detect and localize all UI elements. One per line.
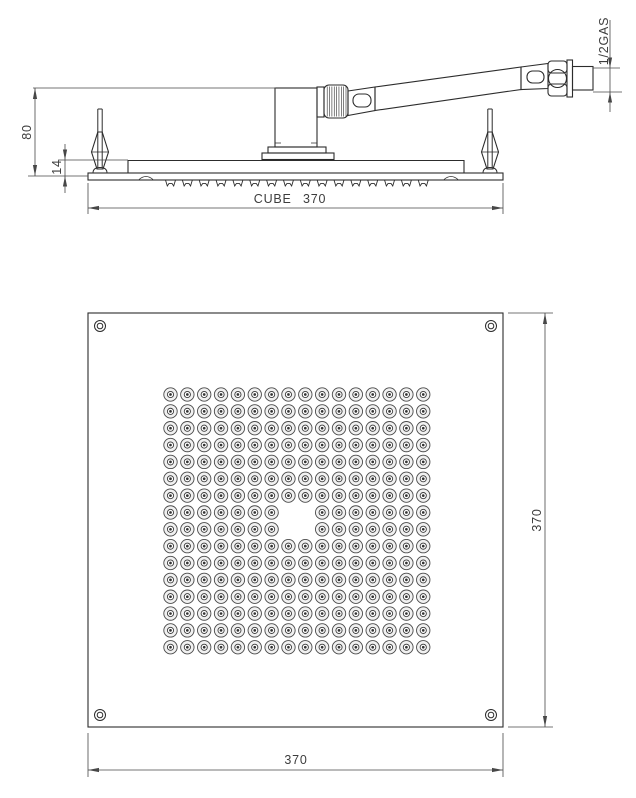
nozzle-center-dot <box>371 646 374 649</box>
nozzle-center-dot <box>355 393 358 396</box>
side-nozzle <box>166 180 176 186</box>
plate-raised-section <box>128 161 464 174</box>
nozzle-center-dot <box>405 562 408 565</box>
nozzle-center-dot <box>388 511 391 514</box>
nozzle-center-dot <box>186 579 189 582</box>
dimension-plan-bottom-370: 370 <box>88 733 503 777</box>
nozzle-center-dot <box>405 427 408 430</box>
nozzle-center-dot <box>253 410 256 413</box>
nozzle-center-dot <box>422 511 425 514</box>
nozzle-center-dot <box>253 494 256 497</box>
side-view <box>88 60 593 186</box>
nozzle-center-dot <box>186 612 189 615</box>
knurl-texture <box>327 87 346 117</box>
nozzle-center-dot <box>203 579 206 582</box>
nozzle-center-dot <box>270 511 273 514</box>
arrowhead <box>492 768 503 772</box>
nozzle-center-dot <box>253 461 256 464</box>
arrowhead <box>33 88 37 99</box>
nozzle-center-dot <box>287 444 290 447</box>
nozzle-center-dot <box>220 444 223 447</box>
nozzle-center-dot <box>186 427 189 430</box>
nozzle-center-dot <box>371 494 374 497</box>
nozzle-center-dot <box>405 579 408 582</box>
pin-foot-dome <box>483 168 497 174</box>
side-nozzle <box>317 180 327 186</box>
nozzle-center-dot <box>287 612 290 615</box>
nozzle-center-dot <box>270 528 273 531</box>
nozzle-center-dot <box>321 545 324 548</box>
nozzle-center-dot <box>203 646 206 649</box>
nozzle-center-dot <box>287 545 290 548</box>
nozzle-center-dot <box>203 494 206 497</box>
nozzle-center-dot <box>422 494 425 497</box>
nozzle-center-dot <box>388 629 391 632</box>
nozzle-center-dot <box>355 562 358 565</box>
nozzle-center-dot <box>253 511 256 514</box>
nozzle-center-dot <box>304 444 307 447</box>
nozzle-center-dot <box>321 646 324 649</box>
hex-nut-middle-facet <box>549 70 567 88</box>
nozzle-center-dot <box>186 461 189 464</box>
dimension-thickness-14: 14 <box>50 144 128 193</box>
hex-nut-bottom-facet <box>548 84 567 96</box>
corner-screw-inner <box>488 712 494 718</box>
nozzle-center-dot <box>321 562 324 565</box>
nozzle-center-dot <box>304 595 307 598</box>
nozzle-center-dot <box>422 612 425 615</box>
nozzle-center-dot <box>169 511 172 514</box>
dimension-thread-half-gas: 1/2GAS <box>593 17 622 112</box>
nozzle-center-dot <box>220 410 223 413</box>
nozzle-center-dot <box>253 477 256 480</box>
corner-screws <box>95 321 497 721</box>
nozzle-center-dot <box>371 562 374 565</box>
plate-face <box>88 313 503 727</box>
nozzle-center-dot <box>321 393 324 396</box>
nozzle-center-dot <box>203 461 206 464</box>
knurled-nut <box>324 85 348 118</box>
nozzle-center-dot <box>287 646 290 649</box>
nozzle-center-dot <box>287 494 290 497</box>
nozzle-center-dot <box>253 595 256 598</box>
mounting-pins <box>92 109 499 173</box>
nozzle-center-dot <box>220 562 223 565</box>
nozzle-center-dot <box>220 494 223 497</box>
side-nozzle <box>216 180 226 186</box>
side-nozzle <box>401 180 411 186</box>
nozzle-center-dot <box>304 646 307 649</box>
pin-foot-dome <box>93 168 107 174</box>
nozzle-center-dot <box>371 410 374 413</box>
pedestal-upper-step <box>268 147 326 153</box>
side-nozzle <box>199 180 209 186</box>
nozzle-center-dot <box>237 612 240 615</box>
nozzle-center-dot <box>253 579 256 582</box>
nozzle-center-dot <box>422 410 425 413</box>
nozzle-center-dot <box>220 579 223 582</box>
side-nozzle <box>182 180 192 186</box>
nozzle-center-dot <box>203 410 206 413</box>
nozzle-center-dot <box>321 511 324 514</box>
mounting-pin <box>482 109 499 173</box>
nozzle-center-dot <box>220 511 223 514</box>
nozzle-center-dot <box>237 528 240 531</box>
nozzle-center-dot <box>422 595 425 598</box>
nozzle-center-dot <box>237 629 240 632</box>
nozzle-center-dot <box>186 595 189 598</box>
nozzle-center-dot <box>169 410 172 413</box>
nozzle-center-dot <box>304 612 307 615</box>
nozzle-center-dot <box>270 562 273 565</box>
nozzle-center-dot <box>237 494 240 497</box>
nozzle-center-dot <box>405 410 408 413</box>
nozzle-center-dot <box>321 629 324 632</box>
nozzle-center-dot <box>321 427 324 430</box>
nozzle-center-dot <box>422 444 425 447</box>
nozzle-center-dot <box>270 393 273 396</box>
nozzle-center-dot <box>287 410 290 413</box>
nozzle-center-dot <box>388 461 391 464</box>
nozzle-center-dot <box>270 494 273 497</box>
pin-bicone <box>482 132 499 169</box>
arrowhead <box>543 313 547 324</box>
nozzle-center-dot <box>355 410 358 413</box>
corner-screw-inner <box>97 712 103 718</box>
nozzle-center-dot <box>287 427 290 430</box>
nozzle-center-dot <box>169 393 172 396</box>
nozzle-center-dot <box>388 545 391 548</box>
nozzle-center-dot <box>304 461 307 464</box>
arm-left-slot <box>353 94 371 107</box>
corner-screw-outer <box>95 321 106 332</box>
nozzle-center-dot <box>371 612 374 615</box>
nozzle-center-dot <box>338 528 341 531</box>
nozzle-center-dot <box>355 629 358 632</box>
arrowhead <box>543 716 547 727</box>
nozzle-center-dot <box>321 461 324 464</box>
nozzle-center-dot <box>388 595 391 598</box>
nozzle-center-dot <box>405 646 408 649</box>
nozzle-center-dot <box>321 494 324 497</box>
nozzle-center-dot <box>186 477 189 480</box>
nozzle-center-dot <box>355 612 358 615</box>
nozzle-center-dot <box>321 477 324 480</box>
nozzle-center-dot <box>304 545 307 548</box>
side-nozzle <box>418 180 428 186</box>
arm-tube <box>375 67 521 111</box>
side-nozzle <box>334 180 344 186</box>
arrowhead <box>33 165 37 176</box>
technical-drawing-page: 80 14 CUBE 370 1/2GAS 370 <box>0 0 636 798</box>
nozzle-center-dot <box>321 595 324 598</box>
nozzle-center-dot <box>405 477 408 480</box>
washer-flange <box>567 60 573 97</box>
nozzle-center-dot <box>169 545 172 548</box>
nozzle-center-dot <box>186 410 189 413</box>
nozzle-center-dot <box>388 579 391 582</box>
nozzle-center-dot <box>237 444 240 447</box>
nozzle-center-dot <box>203 545 206 548</box>
nozzle-center-dot <box>237 595 240 598</box>
nozzle-center-dot <box>304 410 307 413</box>
nozzle-center-dot <box>405 444 408 447</box>
nozzle-center-dot <box>388 646 391 649</box>
nozzle-center-dot <box>388 410 391 413</box>
nozzle-center-dot <box>220 461 223 464</box>
nozzle-center-dot <box>405 629 408 632</box>
nozzle-center-dot <box>371 477 374 480</box>
nozzle-center-dot <box>237 477 240 480</box>
nozzle-center-dot <box>287 579 290 582</box>
nozzle-center-dot <box>338 595 341 598</box>
nozzle-center-dot <box>371 427 374 430</box>
nozzle-center-dot <box>220 629 223 632</box>
nozzle-center-dot <box>270 461 273 464</box>
nozzle-center-dot <box>422 528 425 531</box>
nozzle-center-dot <box>169 562 172 565</box>
nozzle-center-dot <box>371 511 374 514</box>
nozzle-center-dot <box>355 427 358 430</box>
nozzle-center-dot <box>355 579 358 582</box>
nozzle-grid <box>164 388 430 654</box>
nozzle-center-dot <box>338 612 341 615</box>
nozzle-center-dot <box>169 612 172 615</box>
nozzle-center-dot <box>287 393 290 396</box>
nozzle-center-dot <box>253 545 256 548</box>
nozzle-center-dot <box>220 427 223 430</box>
nozzle-center-dot <box>270 410 273 413</box>
nozzle-center-dot <box>169 579 172 582</box>
nozzle-center-dot <box>388 612 391 615</box>
nozzle-center-dot <box>388 477 391 480</box>
nut-collar <box>317 87 324 117</box>
nozzle-center-dot <box>287 477 290 480</box>
nozzle-center-dot <box>186 646 189 649</box>
nozzle-center-dot <box>422 461 425 464</box>
mounting-pin <box>92 109 109 173</box>
nozzle-center-dot <box>270 579 273 582</box>
nozzle-center-dot <box>169 595 172 598</box>
nozzle-center-dot <box>422 545 425 548</box>
nozzle-center-dot <box>169 477 172 480</box>
nozzle-center-dot <box>253 562 256 565</box>
nozzle-center-dot <box>203 562 206 565</box>
nozzle-center-dot <box>203 595 206 598</box>
arrowhead <box>492 206 503 210</box>
dim-label-14: 14 <box>50 159 64 175</box>
nozzle-center-dot <box>220 477 223 480</box>
nozzle-center-dot <box>203 444 206 447</box>
nozzle-center-dot <box>270 427 273 430</box>
nozzle-center-dot <box>405 494 408 497</box>
plate-right-boss <box>444 177 458 180</box>
nozzle-center-dot <box>253 528 256 531</box>
nozzle-center-dot <box>169 444 172 447</box>
side-nozzle <box>385 180 395 186</box>
hex-nut-top-facet <box>548 61 567 73</box>
nozzle-center-dot <box>355 528 358 531</box>
nozzle-center-dot <box>203 629 206 632</box>
arrowhead <box>63 150 67 161</box>
nozzle-center-dot <box>169 629 172 632</box>
nozzle-center-dot <box>203 427 206 430</box>
nozzle-center-dot <box>338 427 341 430</box>
nozzle-center-dot <box>270 612 273 615</box>
side-nozzle-row <box>166 180 429 186</box>
side-nozzle <box>368 180 378 186</box>
nozzle-center-dot <box>169 427 172 430</box>
nozzle-center-dot <box>405 528 408 531</box>
nozzle-center-dot <box>388 427 391 430</box>
nozzle-center-dot <box>338 562 341 565</box>
nozzle-center-dot <box>338 461 341 464</box>
dim-label-right-370: 370 <box>530 508 544 531</box>
nozzle-center-dot <box>186 562 189 565</box>
nozzle-center-dot <box>253 444 256 447</box>
nozzle-center-dot <box>405 545 408 548</box>
nozzle-center-dot <box>355 461 358 464</box>
nozzle-center-dot <box>371 595 374 598</box>
nozzle-center-dot <box>304 579 307 582</box>
nozzle-center-dot <box>355 494 358 497</box>
nozzle-center-dot <box>237 562 240 565</box>
inlet-column <box>275 88 317 147</box>
side-nozzle <box>267 180 277 186</box>
nozzle-center-dot <box>405 393 408 396</box>
dim-label-bottom-370: 370 <box>284 753 307 767</box>
nozzle-center-dot <box>371 393 374 396</box>
nozzle-center-dot <box>371 461 374 464</box>
nozzle-center-dot <box>186 528 189 531</box>
dim-label-half-gas: 1/2GAS <box>597 17 611 66</box>
nozzle-center-dot <box>186 444 189 447</box>
nozzle-center-dot <box>220 595 223 598</box>
nozzle-center-dot <box>304 562 307 565</box>
plate-side-profile <box>88 173 503 180</box>
nozzle-center-dot <box>220 528 223 531</box>
nozzle-center-dot <box>338 579 341 582</box>
nozzle-center-dot <box>253 646 256 649</box>
arrowhead <box>63 176 67 187</box>
nozzle-center-dot <box>186 393 189 396</box>
nozzle-center-dot <box>203 528 206 531</box>
nozzle-center-dot <box>422 427 425 430</box>
nozzle-center-dot <box>270 595 273 598</box>
nozzle-center-dot <box>338 410 341 413</box>
nozzle-center-dot <box>355 444 358 447</box>
nozzle-center-dot <box>253 393 256 396</box>
arrowhead <box>88 768 99 772</box>
nozzle-center-dot <box>405 595 408 598</box>
nozzle-center-dot <box>321 444 324 447</box>
nozzle-center-dot <box>422 562 425 565</box>
nozzle-center-dot <box>169 461 172 464</box>
nozzle-center-dot <box>304 393 307 396</box>
pedestal-lower-step <box>262 153 334 160</box>
side-nozzle <box>300 180 310 186</box>
drawing-canvas: 80 14 CUBE 370 1/2GAS 370 <box>0 0 636 798</box>
nozzle-center-dot <box>338 477 341 480</box>
nozzle-center-dot <box>422 477 425 480</box>
nozzle-center-dot <box>388 562 391 565</box>
nozzle-center-dot <box>338 545 341 548</box>
plate-left-boss <box>139 177 153 180</box>
nozzle-center-dot <box>338 393 341 396</box>
nozzle-center-dot <box>304 427 307 430</box>
nozzle-center-dot <box>169 528 172 531</box>
pin-bicone <box>92 132 109 169</box>
nozzle-center-dot <box>422 629 425 632</box>
nozzle-center-dot <box>220 646 223 649</box>
side-nozzle <box>283 180 293 186</box>
corner-screw-inner <box>97 323 103 329</box>
nozzle-center-dot <box>371 444 374 447</box>
nozzle-center-dot <box>355 545 358 548</box>
nozzle-center-dot <box>237 393 240 396</box>
nozzle-center-dot <box>304 494 307 497</box>
nozzle-center-dot <box>237 410 240 413</box>
nozzle-center-dot <box>237 511 240 514</box>
nozzle-center-dot <box>405 511 408 514</box>
nozzle-center-dot <box>388 494 391 497</box>
nozzle-center-dot <box>270 545 273 548</box>
nozzle-center-dot <box>388 528 391 531</box>
nozzle-center-dot <box>287 461 290 464</box>
nozzle-center-dot <box>220 612 223 615</box>
nozzle-center-dot <box>186 545 189 548</box>
nozzle-center-dot <box>237 579 240 582</box>
nozzle-center-dot <box>304 477 307 480</box>
nozzle-center-dot <box>422 393 425 396</box>
nozzle-center-dot <box>304 629 307 632</box>
arm-right-slot <box>527 71 544 83</box>
nozzle-center-dot <box>169 494 172 497</box>
nozzle-center-dot <box>422 579 425 582</box>
nozzle-center-dot <box>186 629 189 632</box>
nozzle-center-dot <box>270 477 273 480</box>
nozzle-center-dot <box>338 511 341 514</box>
nozzle-center-dot <box>237 427 240 430</box>
nozzle-center-dot <box>321 410 324 413</box>
corner-screw-outer <box>486 321 497 332</box>
nozzle-center-dot <box>220 545 223 548</box>
dim-label-80: 80 <box>20 124 34 140</box>
nozzle-center-dot <box>237 545 240 548</box>
nozzle-center-dot <box>355 477 358 480</box>
nozzle-center-dot <box>237 461 240 464</box>
nozzle-center-dot <box>388 393 391 396</box>
plan-view <box>88 313 503 727</box>
nozzle-center-dot <box>270 444 273 447</box>
nozzle-center-dot <box>237 646 240 649</box>
side-nozzle <box>351 180 361 186</box>
nozzle-center-dot <box>220 393 223 396</box>
nozzle-center-dot <box>371 528 374 531</box>
nozzle-center-dot <box>203 477 206 480</box>
nozzle-center-dot <box>405 612 408 615</box>
nozzle-center-dot <box>321 579 324 582</box>
nozzle-center-dot <box>253 629 256 632</box>
nozzle-center-dot <box>321 612 324 615</box>
nozzle-center-dot <box>371 545 374 548</box>
side-nozzle <box>233 180 243 186</box>
dimension-plan-right-370: 370 <box>508 313 553 727</box>
corner-screw-outer <box>486 710 497 721</box>
nozzle-center-dot <box>169 646 172 649</box>
nozzle-center-dot <box>287 629 290 632</box>
nozzle-center-dot <box>338 444 341 447</box>
